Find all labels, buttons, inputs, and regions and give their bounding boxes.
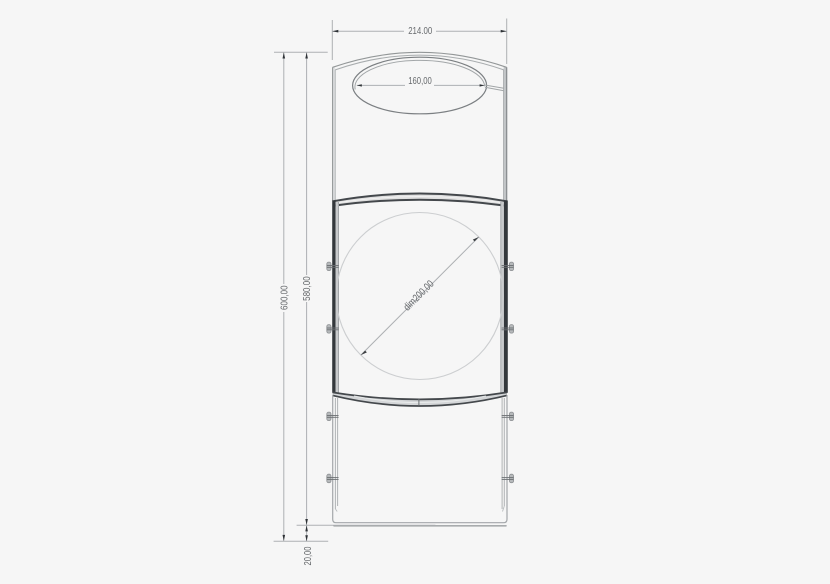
svg-text:160,00: 160,00	[408, 75, 432, 87]
svg-text:214.00: 214.00	[408, 25, 432, 37]
svg-text:20,00: 20,00	[302, 546, 314, 565]
svg-text:600,00: 600,00	[278, 285, 290, 310]
svg-text:580,00: 580,00	[301, 276, 313, 301]
